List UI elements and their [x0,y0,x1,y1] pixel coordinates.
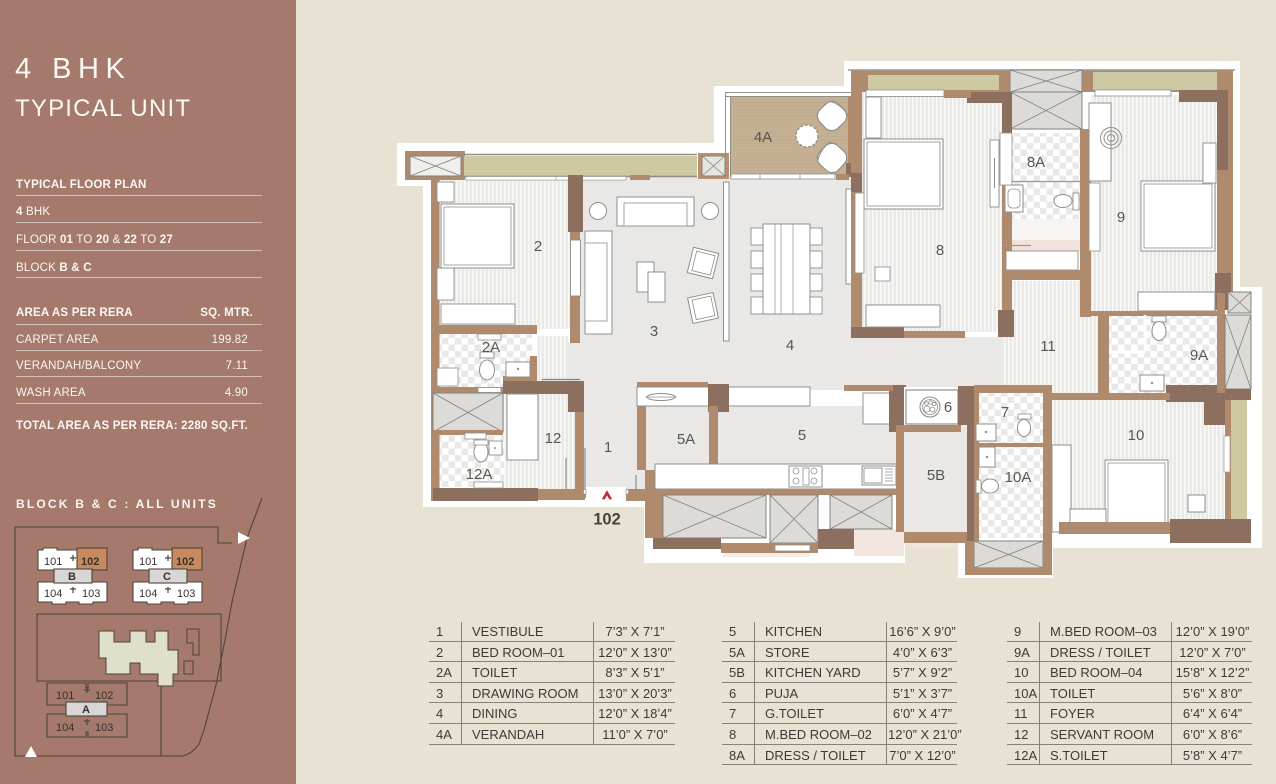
svg-text:10: 10 [1128,427,1145,444]
svg-text:103: 103 [95,722,113,734]
svg-text:5A: 5A [677,431,695,448]
svg-text:4A: 4A [754,129,772,146]
svg-text:101: 101 [44,556,62,568]
svg-text:102: 102 [593,511,621,529]
svg-text:6: 6 [944,399,952,416]
svg-text:102: 102 [176,556,194,568]
svg-text:7: 7 [1001,404,1009,421]
svg-text:5B: 5B [927,467,945,484]
svg-text:9: 9 [1117,209,1125,226]
svg-text:103: 103 [177,588,195,600]
svg-text:1: 1 [604,439,612,456]
svg-text:9A: 9A [1190,347,1208,364]
svg-text:101: 101 [56,690,74,702]
svg-text:104: 104 [44,588,62,600]
svg-text:103: 103 [82,588,100,600]
svg-text:4: 4 [786,337,794,354]
svg-text:10A: 10A [1005,469,1032,486]
svg-text:102: 102 [81,556,99,568]
svg-text:12A: 12A [466,466,493,483]
svg-text:11: 11 [1040,338,1056,355]
svg-text:2A: 2A [482,339,500,356]
svg-text:C: C [163,571,171,583]
svg-text:101: 101 [139,556,157,568]
svg-text:3: 3 [650,323,658,340]
svg-text:5: 5 [798,427,806,444]
svg-text:8: 8 [936,242,944,259]
svg-text:B: B [68,571,76,583]
svg-text:8A: 8A [1027,154,1045,171]
svg-text:104: 104 [139,588,157,600]
svg-text:12: 12 [545,430,562,447]
svg-text:2: 2 [534,238,542,255]
svg-text:102: 102 [95,690,113,702]
svg-text:104: 104 [56,722,74,734]
svg-text:A: A [82,704,90,716]
